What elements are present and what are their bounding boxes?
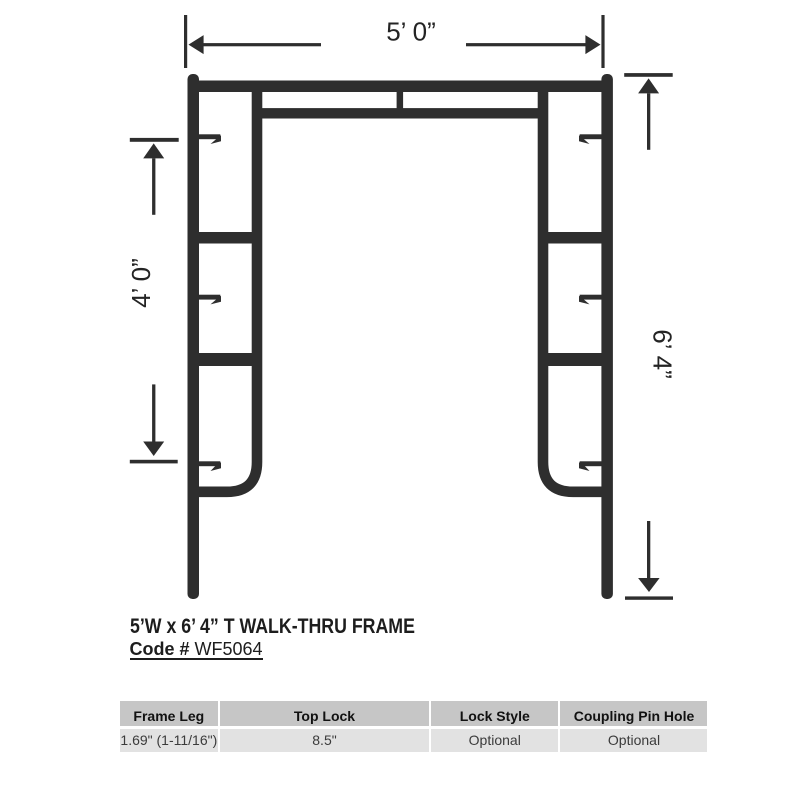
svg-text:5’ 0”: 5’ 0” — [386, 17, 436, 47]
svg-text:6’ 4”: 6’ 4” — [648, 329, 678, 379]
svg-text:4’ 0”: 4’ 0” — [126, 258, 156, 308]
